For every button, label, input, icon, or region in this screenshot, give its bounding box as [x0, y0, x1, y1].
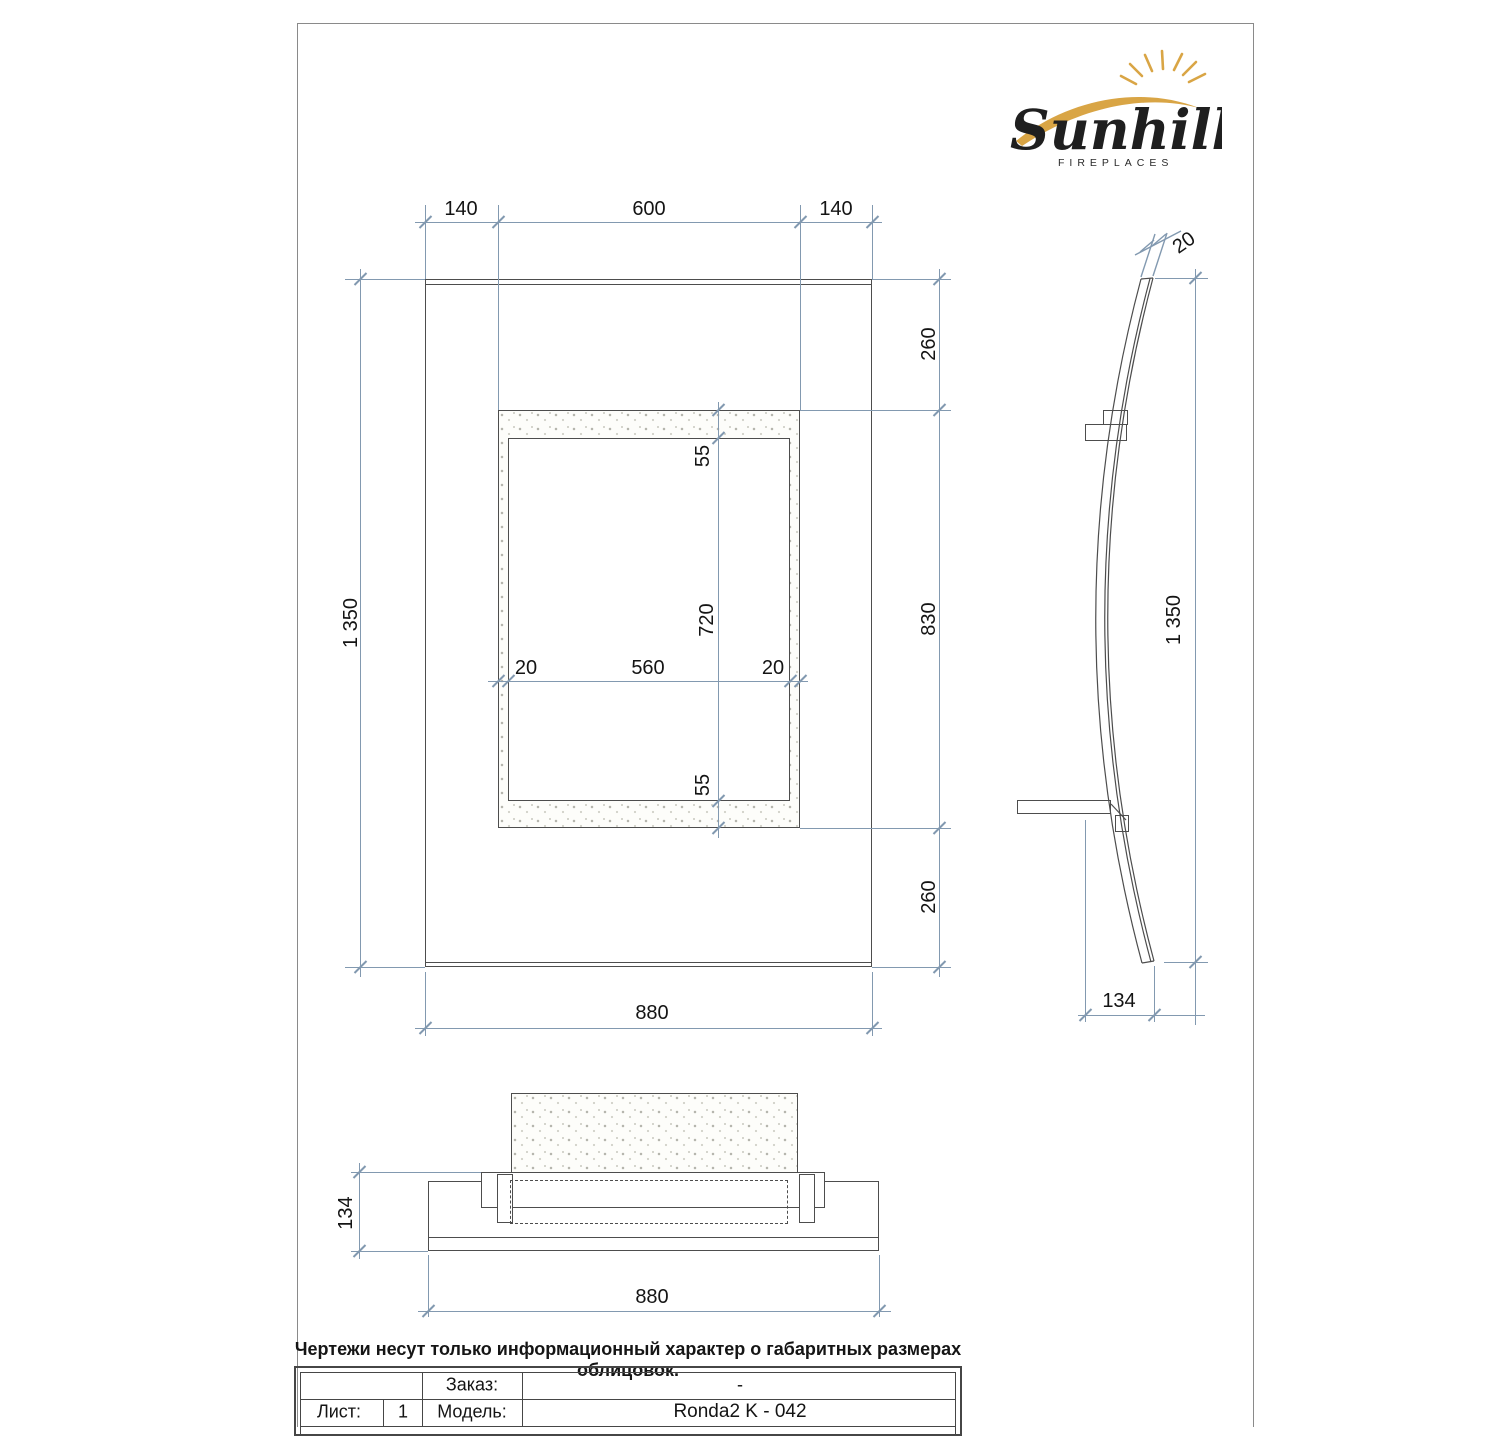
- frame-left: [297, 23, 298, 1427]
- dim-line-plan-depth: [359, 1163, 360, 1259]
- dim-line-opening-height: [718, 402, 719, 838]
- frame-top: [297, 23, 1254, 24]
- dim-line-plan-width: [418, 1311, 891, 1312]
- dim-label: 134: [336, 1196, 356, 1229]
- dim-line-side-depth: [1078, 1015, 1205, 1016]
- dim-label: 880: [635, 1003, 668, 1023]
- ext-line: [1164, 962, 1208, 963]
- ext-line: [1155, 278, 1208, 279]
- title-block-col-line: [422, 1373, 423, 1427]
- plan-firebox-block: [511, 1093, 798, 1173]
- brand-logo: Sunhill FIREPLACES: [1002, 45, 1222, 173]
- ext-line: [800, 828, 951, 829]
- dim-label: 600: [632, 199, 665, 219]
- dim-label: 140: [819, 199, 852, 219]
- title-block-col-line: [522, 1373, 523, 1427]
- dim-label: 260: [919, 880, 939, 913]
- ext-line: [800, 410, 951, 411]
- side-shelf: [1017, 800, 1111, 814]
- dim-label: 830: [919, 602, 939, 635]
- title-block-row-line: [301, 1399, 955, 1400]
- side-bracket: [1085, 424, 1127, 441]
- dim-line-top: [415, 222, 882, 223]
- plan-hidden-outline: [510, 1180, 788, 1224]
- plan-end-cap-right: [799, 1174, 815, 1223]
- dim-label: 1 350: [1164, 595, 1184, 645]
- side-profile: [1000, 215, 1260, 985]
- firebox-opening: [508, 438, 790, 801]
- dim-line-opening-width: [488, 681, 808, 682]
- ext-line: [800, 205, 801, 410]
- drawing-sheet: { "logo": { "brand": "Sunhill", "tagline…: [0, 0, 1500, 1427]
- ext-line: [351, 1251, 428, 1252]
- sheet-label: Лист:: [317, 1402, 361, 1423]
- order-label: Заказ:: [446, 1375, 498, 1396]
- model-value: Ronda2 K - 042: [673, 1401, 806, 1423]
- dim-label: 134: [1102, 991, 1135, 1011]
- sun-rays-icon: [1121, 51, 1205, 84]
- dim-label: 560: [631, 658, 664, 678]
- title-block-col-line: [383, 1399, 384, 1427]
- logo-tagline-text: FIREPLACES: [1058, 157, 1173, 169]
- ext-line: [872, 205, 873, 279]
- dim-label: 20: [762, 658, 784, 678]
- ext-line: [1085, 820, 1086, 1022]
- dim-label: 880: [635, 1287, 668, 1307]
- dim-label: 55: [693, 445, 713, 467]
- dim-line-side-height: [1195, 269, 1196, 1025]
- sheet-value: 1: [398, 1402, 408, 1423]
- dim-line-bottom: [415, 1028, 882, 1029]
- side-bracket-step: [1103, 410, 1128, 425]
- order-value: -: [737, 1375, 743, 1396]
- dim-label: 260: [919, 327, 939, 360]
- front-panel-bottom-inner-line: [426, 962, 871, 963]
- model-label: Модель:: [437, 1402, 507, 1423]
- dim-label: 20: [515, 658, 537, 678]
- side-shelf-tab: [1115, 815, 1129, 832]
- ext-line: [425, 205, 426, 279]
- dim-label: 55: [693, 774, 713, 796]
- dim-label: 140: [444, 199, 477, 219]
- front-panel-top-inner-line: [426, 284, 871, 285]
- logo-brand-text: Sunhill: [1010, 97, 1222, 162]
- ext-line: [498, 205, 499, 410]
- dim-label: 1 350: [341, 598, 361, 648]
- ext-line: [351, 1172, 481, 1173]
- plan-base-inner-line: [429, 1237, 878, 1238]
- dim-label: 720: [697, 603, 717, 636]
